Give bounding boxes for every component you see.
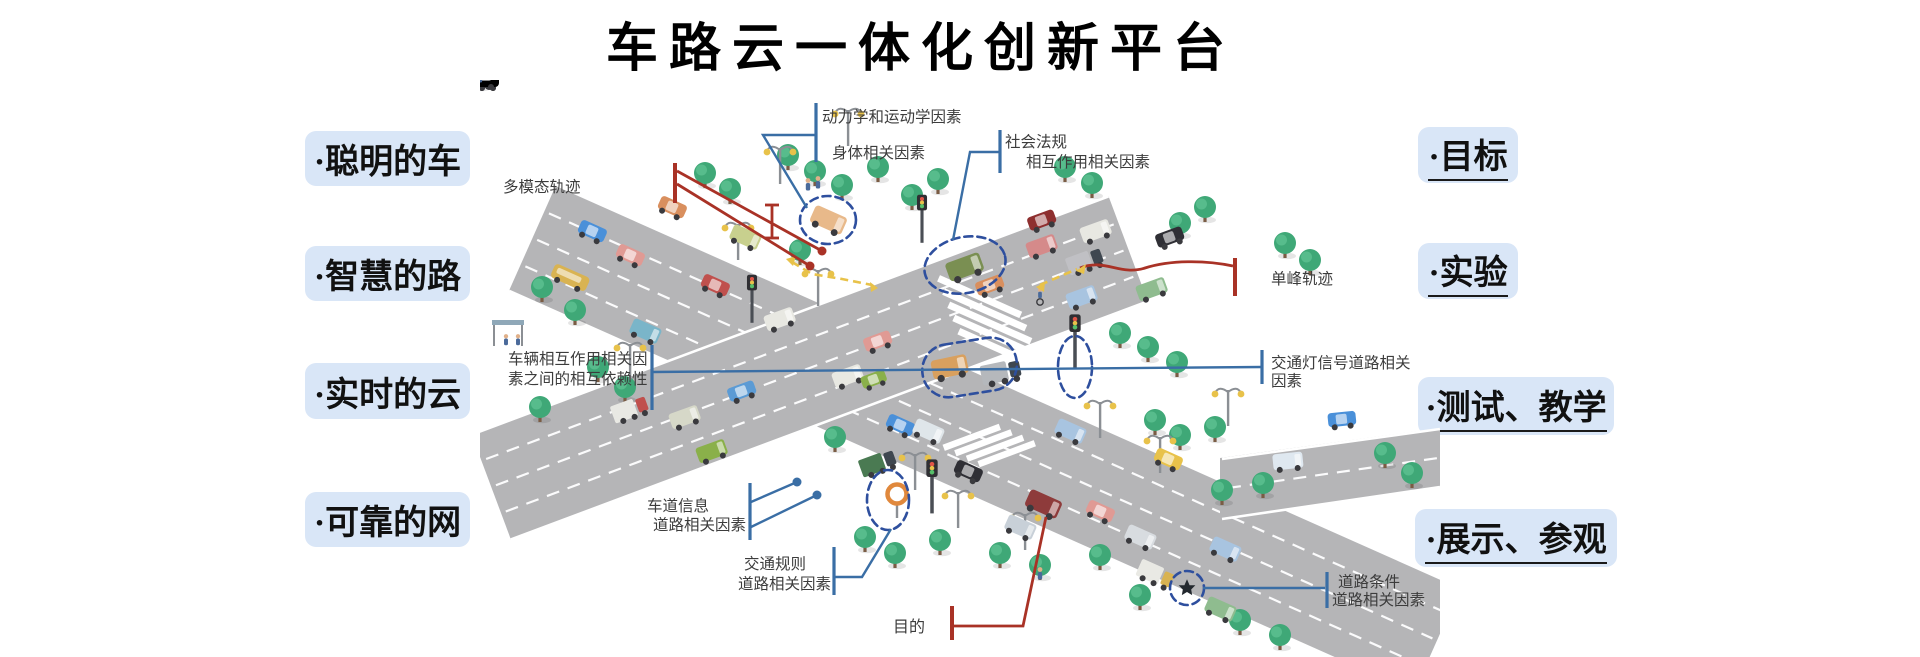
tree-icon <box>1194 196 1216 223</box>
annotation-purpose: 目的 <box>893 618 925 636</box>
label-reliable-network-text: ·可靠的网 <box>314 495 461 544</box>
tree-icon <box>929 529 951 556</box>
car-icon <box>655 195 688 222</box>
annotation-social-rules: 社会法规 <box>1005 133 1067 151</box>
tree-icon <box>1089 544 1111 571</box>
tree-icon <box>1166 351 1188 378</box>
car-icon <box>1327 411 1357 431</box>
label-exhibit-visit-text: ·展示、参观 <box>1425 512 1606 564</box>
annotation-interaction-factors: 相互作用相关因素 <box>1026 153 1150 171</box>
annotation-traffic-signal-line2: 因素 <box>1271 372 1302 390</box>
tree-icon <box>831 174 853 201</box>
label-test-teaching: ·测试、教学 <box>1418 377 1614 435</box>
tree-icon <box>1081 172 1103 199</box>
tree-icon <box>1269 624 1291 651</box>
annotation-vehicle-interaction-line2: 素之间的相互依赖性 <box>508 370 648 388</box>
tree-icon <box>1129 584 1151 611</box>
car-icon <box>1154 226 1186 252</box>
road-sign-icon <box>888 485 907 519</box>
annotation-traffic-rules-line1: 交通规则 <box>744 555 806 573</box>
label-smart-car: ·聪明的车 <box>305 131 470 186</box>
connector-lane-info <box>750 478 822 541</box>
traffic-light-icon <box>917 195 927 243</box>
annotation-multimodal-trajectory: 多模态轨迹 <box>503 178 581 196</box>
label-smart-road: ·智慧的路 <box>305 246 470 301</box>
annotation-lane-info-line2: 道路相关因素 <box>653 516 746 534</box>
tree-icon <box>1204 416 1226 443</box>
intersection-illustration: 动力学和运动学因素 身体相关因素 社会法规 相互作用相关因素 多模态轨迹 车辆相… <box>480 80 1440 657</box>
tree-icon <box>884 542 906 569</box>
person-icon <box>504 334 508 345</box>
annotation-traffic-signal-line1: 交通灯信号道路相关 <box>1271 354 1411 372</box>
annotation-road-condition-line2: 道路相关因素 <box>1332 591 1425 609</box>
annotation-lane-info-line1: 车道信息 <box>647 497 709 515</box>
annotation-traffic-rules-line2: 道路相关因素 <box>738 575 831 593</box>
highlighted-van-icon <box>808 205 848 239</box>
page-title: 车路云一体化创新平台 <box>606 6 1236 81</box>
annotation-vehicle-interaction-line1: 车辆相互作用相关因 <box>508 350 648 368</box>
tree-icon <box>824 426 846 453</box>
person-icon <box>816 176 821 188</box>
tree-icon <box>564 299 586 326</box>
annotation-body-factors: 身体相关因素 <box>832 144 925 162</box>
tree-icon <box>1274 232 1296 259</box>
label-reliable-network: ·可靠的网 <box>305 492 470 547</box>
annotation-road-condition-line1: 道路条件 <box>1338 573 1400 591</box>
traffic-light-icon <box>926 459 937 513</box>
person-icon <box>806 178 811 190</box>
label-exhibit-visit: ·展示、参观 <box>1415 509 1617 567</box>
tree-icon <box>854 526 876 553</box>
label-realtime-cloud-text: ·实时的云 <box>314 367 461 416</box>
label-test-teaching-text: ·测试、教学 <box>1425 380 1606 432</box>
label-smart-road-text: ·智慧的路 <box>314 249 461 298</box>
street-lamp-icon <box>942 491 975 528</box>
label-goal-text: ·目标 <box>1428 129 1507 181</box>
connector-social-rules <box>953 130 1000 240</box>
tree-icon <box>989 542 1011 569</box>
label-experiment-text: ·实验 <box>1428 245 1507 297</box>
person-icon <box>1038 567 1043 579</box>
annotation-unimodal-trajectory: 单峰轨迹 <box>1271 270 1333 288</box>
tree-icon <box>1137 336 1159 363</box>
slide: 车路云一体化创新平台 ·聪明的车 ·智慧的路 ·实时的云 ·可靠的网 ·目标 ·… <box>0 0 1920 657</box>
tree-icon <box>1109 322 1131 349</box>
van-icon <box>727 224 762 254</box>
label-realtime-cloud: ·实时的云 <box>305 363 470 419</box>
tree-icon <box>927 168 949 195</box>
person-icon <box>516 334 520 345</box>
tree-icon <box>1144 409 1166 436</box>
annotation-dynamics: 动力学和运动学因素 <box>822 108 962 126</box>
label-smart-car-text: ·聪明的车 <box>314 134 461 183</box>
